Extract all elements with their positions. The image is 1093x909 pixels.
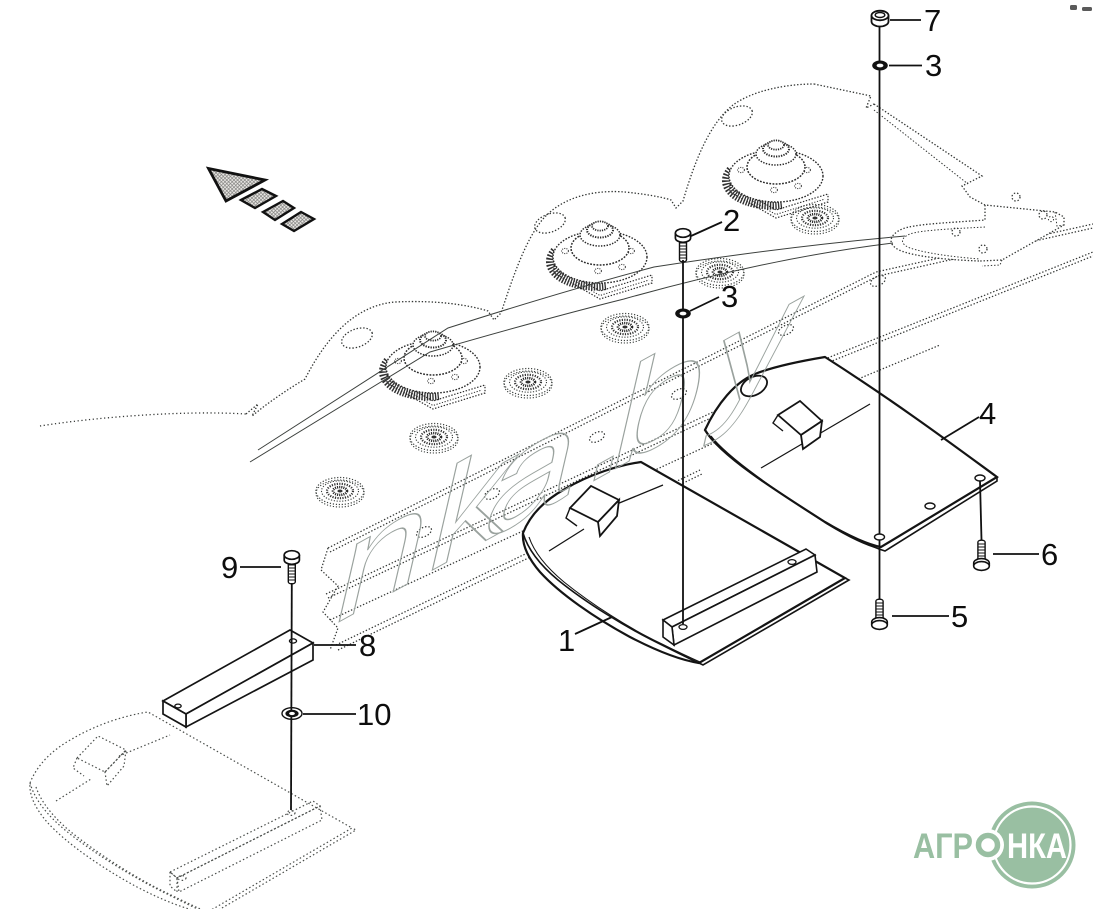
svg-text:4: 4 [979,396,996,431]
svg-text:5: 5 [951,599,968,634]
svg-text:3: 3 [721,279,738,314]
svg-text:3: 3 [925,48,942,83]
svg-text:2: 2 [723,203,740,238]
svg-text:9: 9 [221,550,238,585]
svg-text:1: 1 [558,623,575,658]
svg-text:НКА: НКА [1007,827,1067,866]
svg-text:10: 10 [357,697,391,732]
svg-text:7: 7 [924,3,941,38]
svg-text:8: 8 [359,628,376,663]
svg-text:6: 6 [1041,537,1058,572]
svg-text:АГР: АГР [913,827,973,866]
